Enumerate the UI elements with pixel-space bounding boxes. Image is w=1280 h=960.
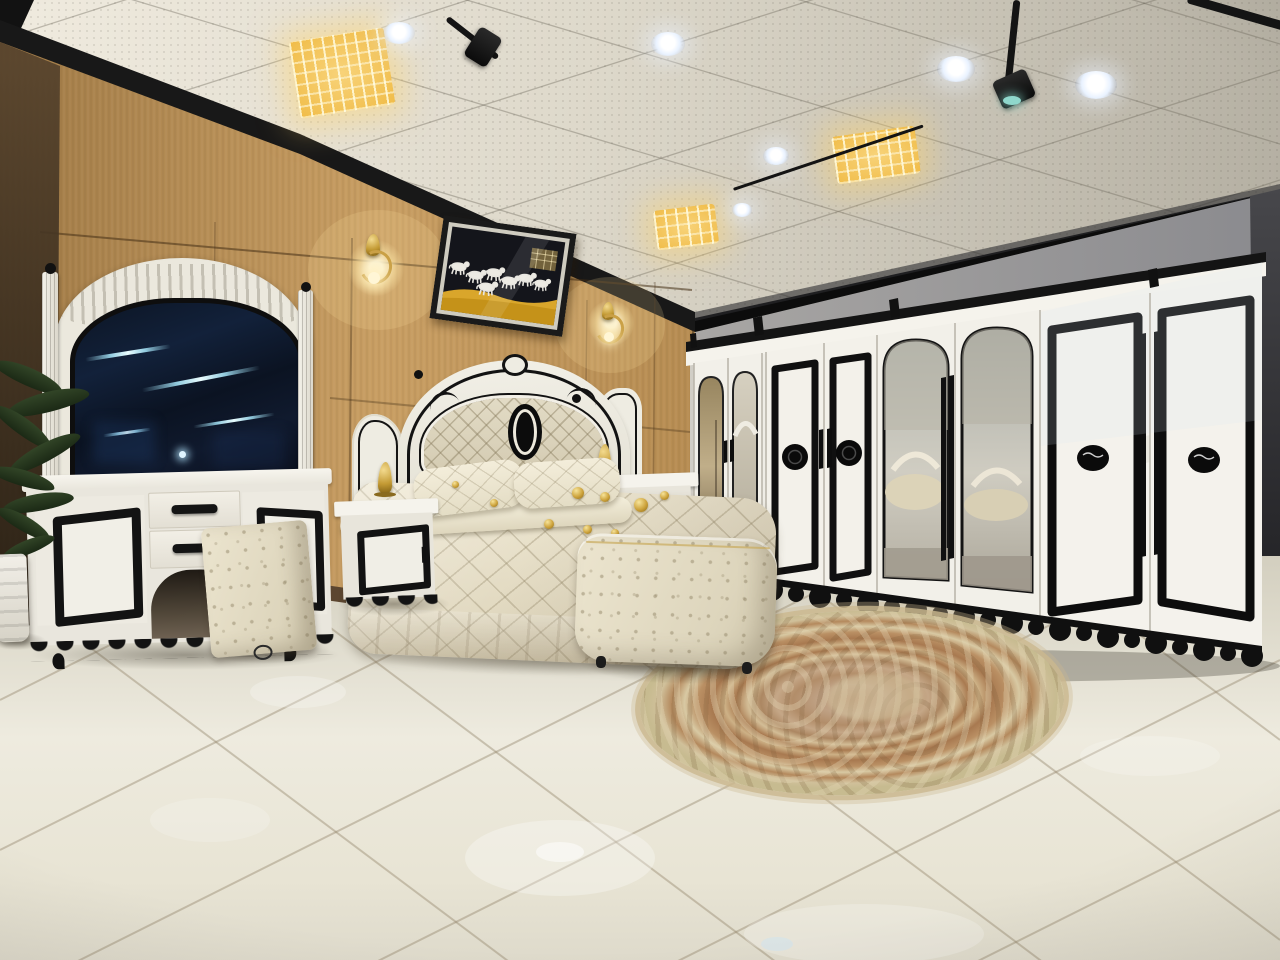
gold-ornament	[634, 498, 648, 512]
nightstand-left	[334, 498, 442, 618]
mirror-finial-right	[301, 282, 311, 292]
nightstand-left-handle	[422, 547, 427, 563]
gold-ornament	[600, 492, 610, 502]
headboard-oval-medallion	[508, 404, 542, 460]
gold-ornament	[544, 519, 554, 529]
dresser-mirror-glass	[70, 298, 304, 484]
headboard-knob-left	[414, 370, 423, 379]
nightstand-left-body	[340, 512, 435, 599]
showroom-photo	[0, 0, 1280, 960]
plant-pot	[0, 553, 30, 642]
gold-ornament	[490, 499, 498, 507]
mirror-finial-left	[45, 263, 56, 274]
gold-ornament	[572, 487, 584, 499]
mirror-reflection-dot	[179, 451, 186, 458]
mirror-reflection-blob-1	[93, 421, 155, 463]
nightstand-left-trim	[357, 524, 431, 596]
oval-medallion-ring	[513, 409, 537, 455]
figurine-left-base	[374, 492, 396, 497]
headboard-crown-ornament	[502, 354, 528, 376]
dresser-cabinet-left	[34, 495, 147, 626]
bench-foot-right	[742, 662, 752, 674]
wardrobe-door-8-medallion	[1188, 447, 1220, 473]
gold-ornament	[452, 481, 459, 488]
bench-foot-left	[596, 656, 606, 668]
gold-ornament	[660, 491, 669, 500]
foot-bench	[574, 533, 778, 668]
cabinet-left-trim	[53, 507, 144, 627]
dresser-foot-left	[52, 653, 64, 669]
drawer-1-handle	[171, 504, 217, 514]
wardrobe-door-3-medallion	[782, 444, 808, 470]
wardrobe-door-7-medallion	[1077, 445, 1109, 471]
mirror-post-right	[298, 290, 313, 482]
bench-gold-trim	[586, 541, 770, 549]
dresser-drawer-1	[148, 490, 241, 528]
nightstand-left-scallop	[341, 594, 437, 613]
gold-ornament	[583, 525, 592, 534]
headboard-knob-right	[572, 394, 581, 403]
wardrobe-door-4-medallion	[836, 440, 862, 466]
upholstered-stool	[201, 520, 318, 659]
